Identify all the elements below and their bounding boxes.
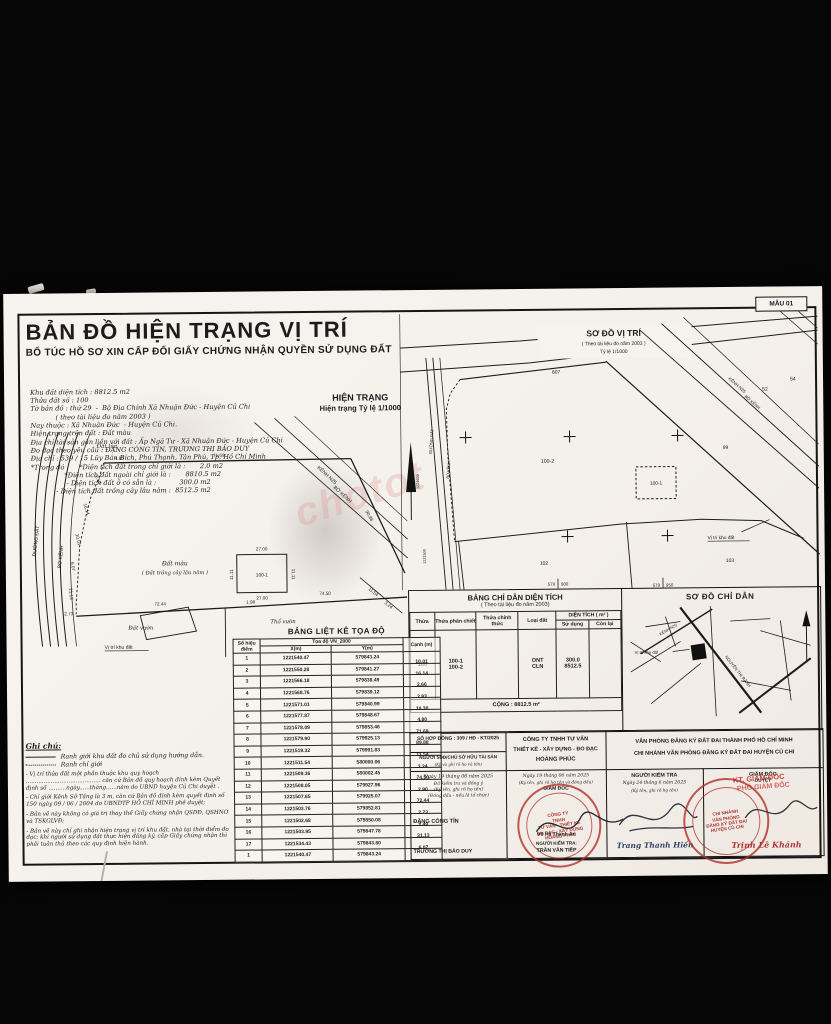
dim-label: 4.80 [115, 456, 124, 461]
point-number: 4 [233, 688, 260, 700]
legend-item: Ranh chỉ giới [26, 760, 234, 769]
col-header: Thửa chính thức [476, 612, 518, 630]
point-number: 3 [233, 676, 260, 688]
owner-name-2: TRƯƠNG THỊ BẢO DUY [414, 848, 505, 855]
coordinate-table-title: BẢNG LIỆT KÊ TỌA ĐỘ [232, 626, 440, 637]
y-coordinate: 580000.06 [333, 756, 404, 768]
legend-label: Ranh giới khu đất đo chủ sử dụng hướng d… [61, 752, 204, 760]
point-number: 9 [234, 746, 261, 758]
x-coordinate: 1221577.87 [261, 710, 332, 722]
scanned-document-page: MẪU 01 BẢN ĐỒ HIỆN TRẠNG VỊ TRÍ BỔ TÚC H… [3, 286, 828, 882]
x-coordinate: 1221540.47 [262, 849, 333, 861]
x-coordinate: 1221568.76 [261, 687, 332, 699]
company-name-line: CÔNG TY TNHH TƯ VẤN [506, 736, 604, 743]
col-header: Cạnh (m) [403, 637, 440, 651]
plot-label: 102 [540, 561, 549, 567]
map-scale: Tỷ lệ 1/1000 [600, 348, 628, 355]
y-coordinate: 579847.78 [333, 826, 404, 838]
north-arrow-icon [406, 442, 416, 492]
cell-chinh-thuc [476, 630, 519, 699]
y-coordinate: 579991.83 [333, 744, 404, 756]
point-number: 7 [234, 723, 261, 735]
col-header: Số hiệu điểm [233, 639, 260, 653]
guide-map-panel: SƠ ĐỒ CHỈ DẪN NGUYỄN THỊ RÀNH KÊNH N25 V… [620, 586, 822, 732]
point-number: 13 [234, 792, 261, 804]
owner-date: Ngày 19 tháng 06 năm 2025 [413, 774, 504, 780]
inner-plot-label: 100-1 [256, 572, 269, 578]
company-signer-name: Võ Hà Thanh An [507, 831, 605, 838]
company-name-line: THIẾT KẾ - XÂY DỰNG - ĐO ĐẠC [507, 746, 605, 753]
solid-line-symbol [26, 756, 56, 757]
x-coordinate: 1221507.65 [262, 791, 333, 803]
dim-label: 90.86 [364, 510, 374, 523]
dim-label: 2.73 [64, 611, 73, 616]
dim-label: 11.54 [367, 586, 379, 597]
dim-label: 16.14 [82, 503, 91, 516]
dim-label: 71.69 [213, 453, 225, 458]
land-type-label: Đất lúa [96, 443, 117, 450]
company-checker-name: TRẦN VĂN TIẾP [508, 847, 606, 854]
x-coordinate: 1221540.47 [260, 652, 331, 664]
legend-label: Ranh chỉ giới [61, 761, 103, 768]
scan-artifact [27, 283, 44, 294]
x-coordinate: 1221519.32 [261, 745, 332, 757]
dim-label: 21.13 [68, 588, 74, 600]
point-number: 16 [235, 827, 262, 839]
x-coordinate: 1221579.90 [261, 733, 332, 745]
dim-label: 2.53 [94, 474, 103, 485]
point-number: 8 [234, 734, 261, 746]
x-coordinate: 1221503.95 [262, 826, 333, 838]
col-header: Loại đất [518, 611, 556, 629]
y-coordinate: 579850.08 [333, 814, 404, 826]
y-coordinate: 579848.67 [332, 710, 403, 722]
x-coordinate: 1221511.54 [261, 757, 332, 769]
x-coordinate: 1221503.76 [262, 803, 333, 815]
owner-column-title: NGƯỜI SDĐ/CHỦ SỞ HỮU TÀI SẢN [412, 754, 505, 760]
note-paragraph: - Chỉ giới Kênh Sở Tầng là 3 m, căn cứ B… [26, 793, 234, 809]
point-number: 5 [234, 699, 261, 711]
contract-number: SỐ HỢP ĐỒNG : 309 / HĐ - KT/2025 [411, 736, 504, 742]
note-paragraph: - Vị trí thửa đất một phần thuộc khu quy… [26, 770, 234, 792]
col-header: Sử dụng [556, 620, 589, 629]
dim-label: 10.01 [75, 533, 82, 546]
company-name-line: HOÀNG PHÚC [507, 756, 605, 763]
director-signature-scribble [741, 791, 821, 832]
notes-paragraphs: - Vị trí thửa đất một phần thuộc khu quy… [26, 770, 235, 849]
plot-label: 99 [723, 445, 729, 451]
x-coordinate: 1221502.68 [262, 815, 333, 827]
site-location-label: Vị trí khu đất [105, 645, 134, 651]
grid-coordinate: 1221500 [423, 549, 427, 564]
dim-label: 3.24 [384, 600, 394, 610]
land-type-label: Đất màu [161, 560, 188, 567]
notes-title: Ghi chú: [25, 740, 233, 751]
point-number: 14 [235, 804, 262, 816]
plot-label: 103 [726, 558, 735, 564]
plot-label: 100-1 [650, 481, 663, 487]
owner-name: ĐẶNG CÔNG TÍN [413, 818, 504, 825]
point-number: 2 [233, 665, 260, 677]
plot-label: 100-2 [541, 459, 554, 465]
point-number: 12 [234, 781, 261, 793]
y-coordinate: 579853.46 [332, 721, 403, 733]
point-number: 6 [234, 711, 261, 723]
y-coordinate: 579852.81 [333, 802, 404, 814]
note-paragraph: - Bản vẽ này chỉ ghi nhận hiện trạng vị … [26, 826, 234, 848]
registry-office-line: CHI NHÁNH VĂN PHÒNG ĐĂNG KÝ ĐẤT ĐAI HUYỆ… [607, 749, 822, 757]
registry-office-line: VĂN PHÒNG ĐĂNG KÝ ĐẤT ĐAI THÀNH PHỐ HỒ C… [606, 737, 821, 745]
owner-note: Đã kiểm tra và đồng ý [413, 781, 504, 787]
y-coordinate: 579838.49 [332, 675, 403, 687]
x-coordinate: 1221578.09 [261, 722, 332, 734]
signature-block: SỐ HỢP ĐỒNG : 309 / HĐ - KT/2025 NGƯỜI S… [409, 728, 824, 860]
y-coordinate: 579843.80 [333, 837, 404, 849]
point-number: 17 [235, 838, 262, 850]
owner-note: (Ký tên, ghi rõ họ tên) [413, 787, 504, 793]
grid-coordinate: 1221600 [416, 474, 420, 489]
note-paragraph: - Bản vẽ này không có giá trị thay thế G… [26, 810, 234, 826]
road-label: ĐƯỜNG ĐẤT [31, 525, 41, 557]
site-marker [691, 643, 707, 660]
dim-label: 72.44 [154, 601, 166, 606]
dim-label: 27.00 [256, 595, 268, 600]
notes-block: Ghi chú: Ranh giới khu đất đo chủ sử dụn… [25, 740, 234, 849]
sub-plot: 100-2 [435, 664, 476, 670]
map-subtitle: ( Theo tài liệu đo năm 2003 ) [582, 341, 646, 348]
dim-label: 11.11 [229, 569, 234, 580]
y-coordinate: 579841.27 [332, 663, 403, 675]
north-arrow-icon [802, 610, 810, 626]
plot-label: 54 [790, 376, 796, 382]
dim-label: 1.98 [246, 600, 255, 605]
grid-coordinate: 900 [561, 582, 569, 587]
form-code-badge: MẪU 01 [755, 296, 807, 311]
point-number: 15 [235, 815, 262, 827]
grid-coordinate: 579 [548, 582, 556, 587]
dim-label: 27.00 [256, 546, 268, 551]
y-coordinate: 579927.96 [333, 779, 404, 791]
plot-label: 607 [552, 370, 561, 376]
area-value: 8512.5 [557, 663, 588, 669]
land-code: CLN [519, 664, 556, 670]
x-coordinate: 1221509.36 [261, 768, 332, 780]
owner-column-subtitle: (Ký và ghi rõ họ và tên) [412, 761, 505, 767]
land-type-sublabel: ( Đất trồng cây lâu năm ) [142, 568, 208, 577]
cell-loai-dat: ONT CLN [518, 629, 557, 698]
x-coordinate: 1221534.43 [262, 838, 333, 850]
canal-label: KÊNH N25 [316, 464, 340, 487]
dim-label: 74.50 [319, 591, 331, 596]
area-table-subtitle: ( Theo tài liệu đo năm 2003) [409, 601, 621, 609]
point-number: 11 [234, 769, 261, 781]
cell-con-lai [589, 629, 622, 698]
map-title: SƠ ĐỒ VỊ TRÍ [586, 327, 641, 339]
y-coordinate: 579840.99 [332, 698, 403, 710]
plot-label: 52 [762, 387, 768, 393]
cell-su-dung: 300.0 8512.5 [556, 629, 589, 698]
land-type-label: Đất vườn [127, 625, 153, 632]
y-coordinate: 579839.12 [332, 686, 403, 698]
dotted-line-symbol [26, 764, 56, 765]
y-coordinate: 579843.24 [332, 652, 403, 664]
land-type-label: Thổ vườn [270, 618, 296, 625]
x-coordinate: 1221550.28 [260, 664, 331, 676]
point-number: 10 [234, 757, 261, 769]
canal-label: KÊNH N25 [727, 376, 747, 394]
point-number: 1 [233, 653, 260, 665]
area-table-row: 100 100-1 100-2 ONT CLN 300.0 8512.5 [410, 629, 622, 700]
canal-bank-label: BỜ KÊNH [55, 545, 66, 569]
company-date: Ngày 19 tháng 06 năm 2025 [507, 773, 605, 779]
guide-street-map: NGUYỄN THỊ RÀNH KÊNH N25 Vị trí khu đất [620, 600, 821, 720]
director-name-signature: Trịnh Lê Khánh [711, 839, 821, 850]
checker-title: NGƯỜI KIỂM TRA [607, 772, 702, 779]
col-header: Còn lại [589, 620, 621, 629]
page-title: BẢN ĐỒ HIỆN TRẠNG VỊ TRÍ [25, 317, 347, 346]
checker-sign-note: (Ký tên, ghi rõ họ tên) [607, 787, 702, 793]
x-coordinate: 1221566.18 [261, 675, 332, 687]
dim-label: 11.11 [291, 569, 296, 580]
y-coordinate: 579843.24 [334, 849, 405, 861]
edge-length: 10.01 [403, 651, 440, 663]
site-location-label: Vị trí khu đất [635, 650, 659, 655]
y-coordinate: 580002.45 [333, 768, 404, 780]
area-total: CỘNG : 8812.5 m² [411, 698, 622, 713]
x-coordinate: 1221508.05 [262, 780, 333, 792]
site-location-label: Vị trí khu đất [708, 535, 736, 541]
y-coordinate: 579925.07 [333, 791, 404, 803]
col-header: Thửa phân chiết [434, 612, 476, 630]
point-number: 1 [235, 850, 262, 862]
owner-note: (Đóng dấu - nếu là tổ chức) [413, 793, 504, 799]
y-coordinate: 579925.13 [332, 733, 403, 745]
x-coordinate: 1221571.01 [261, 699, 332, 711]
checker-date: Ngày 24 tháng 6 năm 2025 [607, 780, 702, 786]
company-checker-label: NGƯỜI KIỂM TRA: [507, 840, 605, 846]
canal-bank-label: BỜ KÊNH [744, 394, 762, 410]
location-diagram-map: ĐƯỜNG ĐẤT BỜ KÊNH 1221600 1221500 SƠ ĐỒ … [399, 310, 820, 590]
